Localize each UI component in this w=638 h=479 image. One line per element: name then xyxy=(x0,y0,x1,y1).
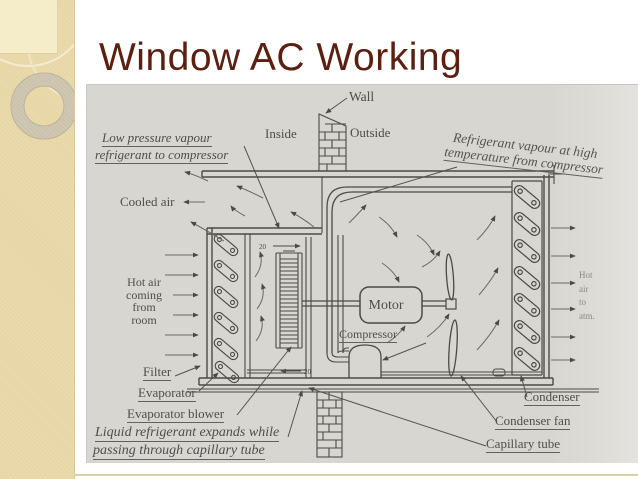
sidebar-texture xyxy=(0,0,74,479)
hot-air-atm-line3: to xyxy=(579,296,595,310)
hot-air-room-line3: from xyxy=(115,301,173,314)
condenser-coil xyxy=(512,181,542,375)
presentation-slide: Window AC Working xyxy=(0,0,638,479)
wall-label: Wall xyxy=(349,90,374,105)
motor-label: Motor xyxy=(350,298,422,313)
hot-air-atm-line2: air xyxy=(579,283,595,297)
filter-label: Filter xyxy=(143,365,171,381)
window-ac-diagram: 20 20 Wall Inside Outside L xyxy=(86,84,638,463)
hot-air-atm-line4: atm. xyxy=(579,310,595,324)
hot-air-room-label: Hot air coming from room xyxy=(115,276,173,326)
hot-air-atm-label: Hot air to atm. xyxy=(579,269,595,323)
evaporator-label: Evaporator xyxy=(138,386,196,402)
flow-marker-top: 20 xyxy=(259,243,267,251)
outside-label: Outside xyxy=(350,126,390,140)
compressor-label: Compressor xyxy=(339,328,397,343)
hot-air-room-line4: room xyxy=(115,314,173,327)
evaporator-blower-label: Evaporator blower xyxy=(127,407,224,423)
flow-marker-bottom: 20 xyxy=(304,368,312,376)
low-pressure-label-line2: refrigerant to compressor xyxy=(95,148,228,164)
evaporator-blower-graphic xyxy=(276,251,302,348)
liquid-expansion-line2: passing through capillary tube xyxy=(93,443,265,460)
hot-air-atm-line1: Hot xyxy=(579,269,595,283)
hot-air-room-line1: Hot air xyxy=(115,276,173,289)
slide-bottom-rule xyxy=(74,474,638,476)
inside-label: Inside xyxy=(265,127,297,141)
low-pressure-label-line1: Low pressure vapour xyxy=(102,131,212,147)
capillary-tube-label: Capillary tube xyxy=(486,437,560,453)
slide-title: Window AC Working xyxy=(99,36,462,80)
sidebar-decoration xyxy=(0,0,75,479)
condenser-label: Condenser xyxy=(524,390,580,406)
cooled-air-label: Cooled air xyxy=(120,195,175,209)
evaporator-coil xyxy=(212,233,240,385)
condenser-fan-label: Condenser fan xyxy=(495,414,570,430)
sidebar-corner-square xyxy=(0,0,58,54)
liquid-expansion-line1: Liquid refrigerant expands while xyxy=(95,425,279,442)
